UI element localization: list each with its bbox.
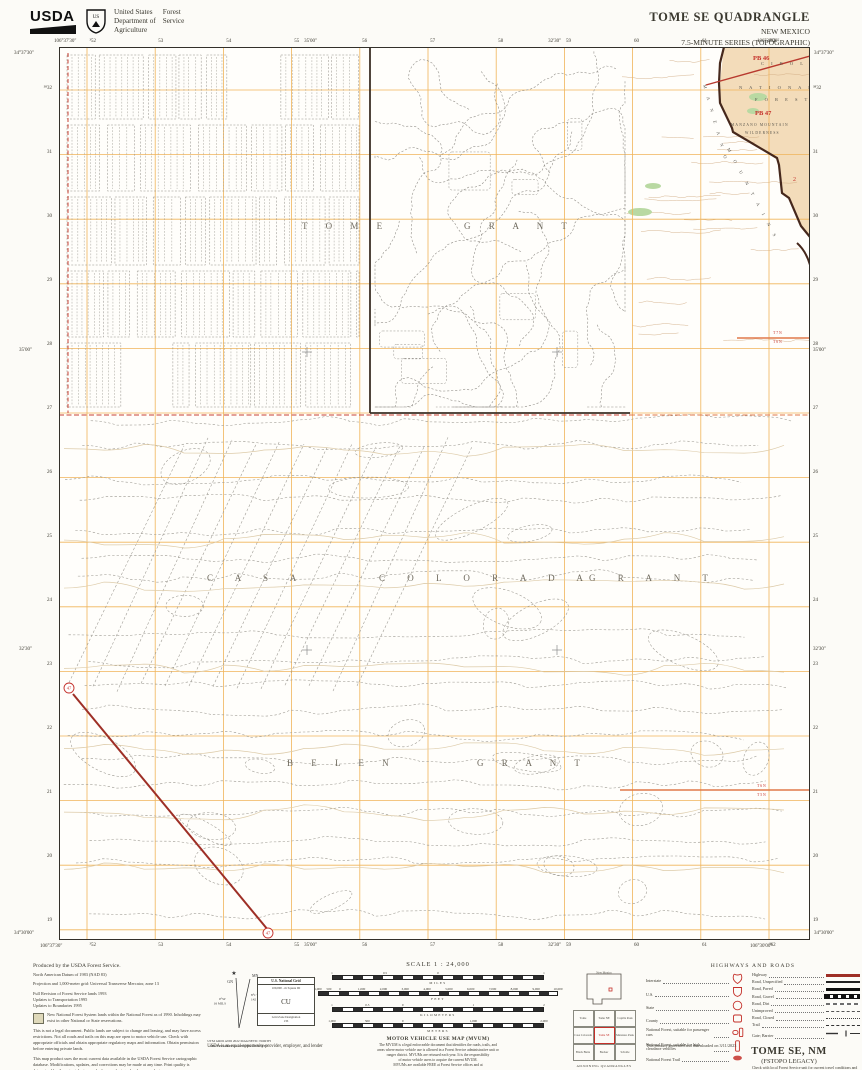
- rect-decor: [210, 197, 256, 265]
- map-label: PB 46: [753, 55, 770, 62]
- dotted-leader: [775, 987, 824, 992]
- gn-mils: 16 MILS: [214, 1002, 226, 1006]
- margin-label: 32'30": [0, 647, 32, 652]
- rect-decor: [332, 55, 359, 119]
- rect-decor: [568, 119, 582, 151]
- new-mexico-outline: New Mexico: [582, 971, 626, 1007]
- scale-tick-label: 2,000: [380, 987, 387, 991]
- line-sample-road-gravel: [824, 994, 860, 999]
- ellipse-decor: [645, 183, 661, 189]
- new-lands-note: New National Forest System lands within …: [33, 1012, 203, 1024]
- nf-passenger-badge-icon: [731, 1027, 744, 1038]
- scale-tick-label: 6,000: [467, 987, 474, 991]
- rect-decor: [179, 55, 201, 119]
- scale-bar-graphic: [332, 975, 544, 980]
- datum-note: North American Datum of 1983 (NAD 83): [33, 972, 203, 978]
- legend-label: Gate; Barrier: [752, 1034, 773, 1039]
- path-decor: [420, 51, 599, 183]
- scale-tick-label: 2: [543, 1003, 545, 1007]
- new-lands-swatch-icon: [33, 1013, 44, 1024]
- adjoining-quadrangles: New Mexico TomeTome NECapilla PeakCasa C…: [566, 971, 642, 1068]
- path-decor: [641, 230, 721, 233]
- agency-line: United States: [114, 8, 156, 17]
- legend-label: Unimproved: [752, 1009, 773, 1014]
- svg-decor: [732, 986, 743, 997]
- path-decor: [75, 528, 751, 536]
- path-decor: [375, 263, 560, 407]
- margin-label: 35'00": [0, 348, 32, 353]
- circle-decor: [733, 1001, 742, 1010]
- margin-label: 54: [226, 943, 231, 948]
- usda-logo: USDA: [30, 8, 78, 34]
- legend-label: Trail: [752, 1023, 760, 1028]
- grid-north-label: GN: [227, 979, 233, 984]
- path-decor: [585, 325, 625, 407]
- margin-label: ³62: [769, 39, 776, 44]
- path-decor: [638, 333, 678, 335]
- margin-label: 30: [813, 214, 818, 219]
- ellipse-decor: [307, 886, 354, 918]
- usng-zone-value: 13S: [258, 1019, 314, 1023]
- rect-decor: [356, 271, 359, 337]
- rect-decor: [67, 271, 104, 337]
- rect-decor: [60, 48, 810, 940]
- sheet-name-block: TOME SE, NM (FSTOPO LEGACY): [718, 1046, 860, 1065]
- margin-label: 24: [813, 598, 818, 603]
- legend-label: County: [646, 1019, 658, 1024]
- legend-label: State: [646, 1006, 654, 1011]
- path-decor: [64, 663, 784, 675]
- line-sample-road-unspecified: [826, 981, 860, 983]
- usng-title: U.S. National Grid: [258, 978, 314, 985]
- margin-label: 27: [813, 406, 818, 411]
- rect-decor: [285, 197, 325, 265]
- map-label: T O M E: [302, 221, 390, 231]
- line-decor: [239, 979, 250, 1028]
- margin-label: 35'00": [304, 39, 317, 44]
- path-decor: [91, 415, 793, 426]
- margin-label: 19: [12, 918, 52, 923]
- map-label: WILDERNESS: [745, 131, 780, 135]
- margin-label: 27: [12, 406, 52, 411]
- agency-line: Agriculture: [114, 26, 156, 35]
- path-decor: [92, 21, 100, 27]
- margin-label: 61: [702, 39, 707, 44]
- margin-label: 24: [12, 598, 52, 603]
- scale-bar-kilometers: 10.5012KILOMETERS: [332, 1003, 544, 1017]
- usda-logo-swoosh: [30, 25, 76, 34]
- scale-tick-label: 4,000: [423, 987, 430, 991]
- scale-tick-label: 8,000: [511, 987, 518, 991]
- scale-title: SCALE 1 : 24,000: [318, 961, 558, 968]
- ellipse-decor: [328, 476, 408, 498]
- line-decor: [357, 447, 472, 686]
- path-decor: [733, 974, 742, 983]
- margin-label: 22: [12, 726, 52, 731]
- scale-tick-label: 0: [339, 987, 341, 991]
- map-label: G R A N T: [477, 758, 588, 768]
- line-sample-trail: [826, 1025, 860, 1026]
- path-decor: [587, 974, 621, 1004]
- margin-label: 35'00": [813, 348, 826, 353]
- rect-decor: [107, 125, 134, 191]
- svg-decor: [732, 973, 743, 984]
- margin-label: 32'30": [813, 647, 826, 652]
- line-decor: [141, 444, 256, 683]
- ellipse-decor: [186, 810, 237, 842]
- div-decor: 10.5012: [332, 1003, 544, 1007]
- scale-bar-feet: 1,00050001,0002,0003,0004,0005,0006,0007…: [318, 987, 558, 1001]
- scale-bars: 10.501MILES1,00050001,0002,0003,0004,000…: [318, 971, 558, 1033]
- margin-label: 58: [498, 943, 503, 948]
- header: USDA US United States Department of Agri…: [30, 8, 184, 35]
- map-label: G R A N T: [589, 573, 718, 583]
- dotted-leader: [775, 1034, 824, 1039]
- margin-label: 19: [813, 918, 818, 923]
- adjoining-caption: ADJOINING QUADRANGLES: [566, 1064, 642, 1068]
- mvum-title: MOTOR VEHICLE USE MAP (MVUM): [318, 1036, 558, 1042]
- legend-title: HIGHWAYS AND ROADS: [646, 963, 860, 969]
- scale-unit-label: METERS: [332, 1029, 544, 1033]
- margin-label: 57: [430, 943, 435, 948]
- margin-label: 28: [12, 342, 52, 347]
- rect-decor: [734, 1015, 742, 1022]
- path-decor: [375, 122, 442, 254]
- corner-lat-bottom-left: 34°30'00": [14, 931, 34, 936]
- legend-row: Interstate: [646, 973, 744, 984]
- scale-tick-label: 500: [326, 987, 331, 991]
- legend-row: Road, Closed: [752, 1016, 860, 1021]
- margin-label: 28: [813, 342, 818, 347]
- margin-label: 32'30": [548, 943, 561, 948]
- quadrangle-title: TOME SE QUADRANGLE: [540, 10, 810, 25]
- quad-cell: Capilla Peak: [615, 1010, 636, 1027]
- dotted-leader: [663, 980, 729, 985]
- map-label: G R A N T: [464, 221, 575, 231]
- projection-note: Projection and 1,000-meter grid: Univers…: [33, 981, 203, 987]
- rect-decor: [329, 197, 359, 265]
- path-decor: [375, 221, 504, 407]
- rect-decor: [67, 55, 95, 119]
- path-decor: [409, 60, 501, 135]
- path-decor: [64, 444, 784, 456]
- margin-label: 20: [813, 854, 818, 859]
- margin-label: 30: [12, 214, 52, 219]
- path-decor: [532, 109, 625, 366]
- rect-decor: [394, 344, 423, 359]
- legend-label: National Forest, suitable for passenger …: [646, 1028, 712, 1037]
- map-canvas: 4747T O M EG R A N TC A S AC O L O R A D…: [59, 47, 810, 940]
- path-decor: [431, 81, 625, 351]
- rect-decor: [259, 197, 276, 265]
- scale-tick-label: 0.5: [383, 971, 387, 975]
- scale-tick-label: 0: [402, 1019, 404, 1023]
- scale-bar-meters: 1,00050001,0002,000METERS: [332, 1019, 544, 1033]
- path-decor: [751, 249, 799, 251]
- path-decor: [80, 807, 782, 817]
- map-label: C O L O R A D A: [379, 573, 593, 583]
- svg-decor: [732, 1027, 744, 1038]
- scale-unit-label: MILES: [332, 981, 544, 985]
- scale-tick-label: 9,000: [532, 987, 539, 991]
- scale-tick-label: 1: [331, 971, 333, 975]
- corner-lat-top-right: 34°37'30": [814, 51, 834, 56]
- legend-row: U.S.: [646, 986, 744, 997]
- legal-disclaimer: This is not a legal document. Public lan…: [33, 1028, 203, 1052]
- scale-tick-label: 5,000: [445, 987, 452, 991]
- path-decor: [82, 704, 784, 716]
- rect-decor: [173, 343, 189, 407]
- path-decor: [669, 59, 709, 62]
- legend-row: Unimproved: [752, 1009, 860, 1014]
- path-decor: [639, 301, 687, 304]
- map-sheet: USDA US United States Department of Agri…: [0, 0, 862, 1070]
- data-disclaimer: This map product uses the most current d…: [33, 1056, 203, 1070]
- county-route-badge-icon: [731, 1013, 744, 1024]
- margin-label: 29: [813, 278, 818, 283]
- ellipse-decor: [189, 840, 249, 892]
- ellipse-decor: [64, 723, 142, 785]
- path-decor: [471, 160, 533, 346]
- path-decor: [69, 629, 745, 638]
- rect-decor: [254, 343, 300, 407]
- map-label: T 6 N: [773, 340, 782, 344]
- legend-row: State: [646, 1000, 744, 1011]
- dotted-leader: [771, 1002, 824, 1007]
- path-decor: [82, 441, 758, 450]
- line-decor: [69, 446, 184, 683]
- rect-decor: [739, 1028, 742, 1036]
- equal-opportunity-statement: USDA is an equal opportunity provider, e…: [196, 1044, 334, 1050]
- quad-location-marker: [609, 988, 612, 991]
- rect-decor: [198, 125, 246, 191]
- line-decor: [189, 444, 304, 686]
- rect-decor: [449, 152, 490, 190]
- margin-label: 20: [12, 854, 52, 859]
- corner-lon-top-left: 106°37'30": [54, 39, 76, 44]
- map-label: T 7 N: [773, 331, 782, 335]
- ellipse-decor: [616, 789, 665, 829]
- legend-row: Road, Unspecified: [752, 980, 860, 985]
- dotted-leader: [714, 1033, 729, 1038]
- line-decor: [285, 446, 400, 685]
- dotted-leader: [776, 1016, 824, 1021]
- map-label: B E L E N: [287, 758, 397, 768]
- line-sample-road-dirt: [826, 1003, 860, 1005]
- ellipse-decor: [166, 595, 204, 616]
- corner-lon-bottom-left: 106°37'30": [40, 944, 62, 949]
- legend-label: Interstate: [646, 979, 661, 984]
- margin-label: 26: [12, 470, 52, 475]
- new-lands-text: New National Forest System lands within …: [47, 1012, 203, 1024]
- scale-tick-label: 0: [437, 971, 439, 975]
- legend-row: County: [646, 1013, 744, 1024]
- quad-cell: Tome SE: [594, 1027, 615, 1044]
- dotted-leader: [776, 995, 822, 1000]
- agency-name: United States Department of Agriculture: [114, 8, 156, 35]
- service-line: Forest: [163, 8, 185, 17]
- state-inset-label: New Mexico: [596, 971, 612, 975]
- dotted-leader: [660, 1020, 729, 1025]
- shield-us-text: US: [93, 15, 100, 20]
- path-decor: [649, 195, 721, 198]
- scale-tick-label: 1,000: [328, 1019, 335, 1023]
- usng-zone: Grid Zone Designation 13S: [258, 1013, 314, 1025]
- quad-cell: Black Butte: [573, 1044, 594, 1061]
- svg-decor: [732, 1000, 743, 1011]
- map-label: C A S A: [207, 573, 306, 583]
- scale-tick-label: 2,000: [540, 1019, 547, 1023]
- scale-bar-graphic: [318, 991, 558, 996]
- dotted-leader: [775, 1009, 824, 1014]
- corner-lat-top-left: 34°37'30": [14, 51, 34, 56]
- legend-note: Check with local Forest Service unit for…: [752, 1066, 860, 1070]
- line-sample-road-closed: [826, 1018, 860, 1019]
- path-decor: [82, 754, 758, 765]
- agency-line: Department of: [114, 17, 156, 26]
- rect-decor: [182, 271, 230, 337]
- quad-cell: Tome: [573, 1010, 594, 1027]
- scale-tick-label: 0.5: [365, 1003, 369, 1007]
- scale-tick-label: 0: [402, 1003, 404, 1007]
- rect-decor: [306, 343, 351, 407]
- rect-decor: [115, 197, 147, 265]
- declination-caption-1: UTM GRID AND 2022 MAGNETIC NORTH: [207, 1039, 271, 1043]
- legend-row: Road, Dirt: [752, 1002, 860, 1007]
- path-decor: [693, 228, 757, 230]
- path-decor: [710, 193, 750, 195]
- legend-row: Road, Gravel: [752, 994, 860, 999]
- path-decor: [632, 324, 688, 328]
- margin-label: 56: [362, 943, 367, 948]
- path-decor: [80, 495, 782, 503]
- quadrangle-state: NEW MEXICO: [540, 27, 810, 36]
- legend-label: Road, Dirt: [752, 1002, 769, 1007]
- div-decor: 1,00050001,0002,000: [332, 1019, 544, 1023]
- margin-label: 58: [498, 39, 503, 44]
- usng-square-id: CU: [258, 998, 314, 1006]
- state-route-circle-icon: [731, 1000, 744, 1011]
- margin-label: 25: [12, 534, 52, 539]
- legend-row: Gate; Barrier: [752, 1030, 860, 1039]
- quad-cell: Manzano Peak: [615, 1027, 636, 1044]
- path-decor: [448, 169, 625, 311]
- div-decor: 10.501: [332, 971, 544, 975]
- mvum-block: MOTOR VEHICLE USE MAP (MVUM) The MVUM is…: [318, 1036, 558, 1070]
- scale-tick-label: 1,000: [470, 1019, 477, 1023]
- scale-block: SCALE 1 : 24,000 10.501MILES1,00050001,0…: [318, 961, 558, 1070]
- highway-badge: 47: [266, 931, 271, 936]
- scale-unit-label: FEET: [318, 997, 558, 1001]
- quad-cell: Becker: [594, 1044, 615, 1061]
- usng-box: U.S. National Grid 100,000 - m Square ID…: [257, 977, 315, 1026]
- scale-tick-label: 1: [473, 1003, 475, 1007]
- line-decor: [93, 438, 208, 686]
- service-name: Forest Service: [163, 8, 185, 26]
- map-label: M O U N T A I N S: [726, 147, 779, 241]
- rect-decor: [99, 55, 143, 119]
- path-decor: [797, 243, 810, 265]
- margin-label: 56: [362, 39, 367, 44]
- path-decor: [734, 988, 742, 997]
- line-decor: [165, 440, 280, 686]
- margin-label: 22: [813, 726, 818, 731]
- margin-label: 23: [813, 662, 818, 667]
- ellipse-decor: [628, 208, 652, 216]
- rect-decor: [512, 179, 538, 194]
- rect-decor: [286, 125, 314, 191]
- revision-note: Updates to Boundaries 1995: [33, 1003, 203, 1009]
- margin-label: 31: [813, 150, 818, 155]
- line-decor: [237, 444, 352, 688]
- scale-unit-label: KILOMETERS: [332, 1013, 544, 1017]
- path-decor: [64, 533, 784, 548]
- ellipse-decor: [467, 579, 547, 637]
- rect-decor: [402, 358, 447, 383]
- true-north-star-icon: ★: [231, 970, 236, 977]
- margin-label: 55: [294, 943, 299, 948]
- rect-decor: [380, 331, 425, 347]
- scale-bar-graphic: [332, 1023, 544, 1028]
- map-label: PB 47: [755, 110, 772, 117]
- legend-label: Road, Closed: [752, 1016, 774, 1021]
- scale-tick-label: 1,000: [314, 987, 321, 991]
- rect-decor: [281, 55, 329, 119]
- mvum-body: The MVUM is a legal enforceable document…: [318, 1043, 558, 1068]
- path-decor: [64, 863, 784, 873]
- margin-label: 53: [158, 39, 163, 44]
- margin-label: 57: [430, 39, 435, 44]
- margin-label: 55: [294, 39, 299, 44]
- interstate-shield-icon: [731, 973, 744, 984]
- legend-label: U.S.: [646, 993, 653, 998]
- rect-decor: [67, 197, 111, 265]
- map-label: MANZANO MOUNTAIN: [731, 123, 789, 127]
- usng-subtitle: 100,000 - m Square ID: [258, 985, 314, 991]
- scale-tick-label: 1: [331, 1003, 333, 1007]
- path-decor: [65, 475, 741, 485]
- margin-label: 60: [634, 943, 639, 948]
- scale-tick-label: 1: [543, 971, 545, 975]
- path-decor: [375, 211, 550, 407]
- rect-decor: [500, 294, 535, 320]
- rect-decor: [233, 271, 255, 337]
- dotted-leader: [784, 980, 824, 985]
- legend-label: National Forest Trail: [646, 1058, 680, 1063]
- legend-row: Road, Paved: [752, 987, 860, 992]
- quad-cell: Scholle: [615, 1044, 636, 1061]
- margin-label: ³52: [90, 39, 97, 44]
- margin-label: 54: [226, 39, 231, 44]
- dotted-leader: [769, 973, 824, 978]
- div-decor: 1,00050001,0002,0003,0004,0005,0006,0007…: [318, 987, 558, 991]
- line-decor: [236, 978, 239, 1028]
- margin-label: 53: [158, 943, 163, 948]
- margin-label: 26: [813, 470, 818, 475]
- map-label: N A T I O N A L: [739, 85, 810, 90]
- margin-label: ³⁸32: [813, 86, 821, 91]
- margin-label: 61: [702, 943, 707, 948]
- svg-decor: [732, 1013, 743, 1024]
- rect-decor: [563, 331, 578, 367]
- ellipse-decor: [155, 441, 216, 491]
- legend-row: National Forest, suitable for passenger …: [646, 1027, 744, 1038]
- map-label: 2: [793, 177, 796, 183]
- margin-label: 35'00": [304, 943, 317, 948]
- us-route-shield-icon: [731, 986, 744, 997]
- path-decor: [89, 910, 765, 920]
- line-sample-highway: [826, 974, 860, 977]
